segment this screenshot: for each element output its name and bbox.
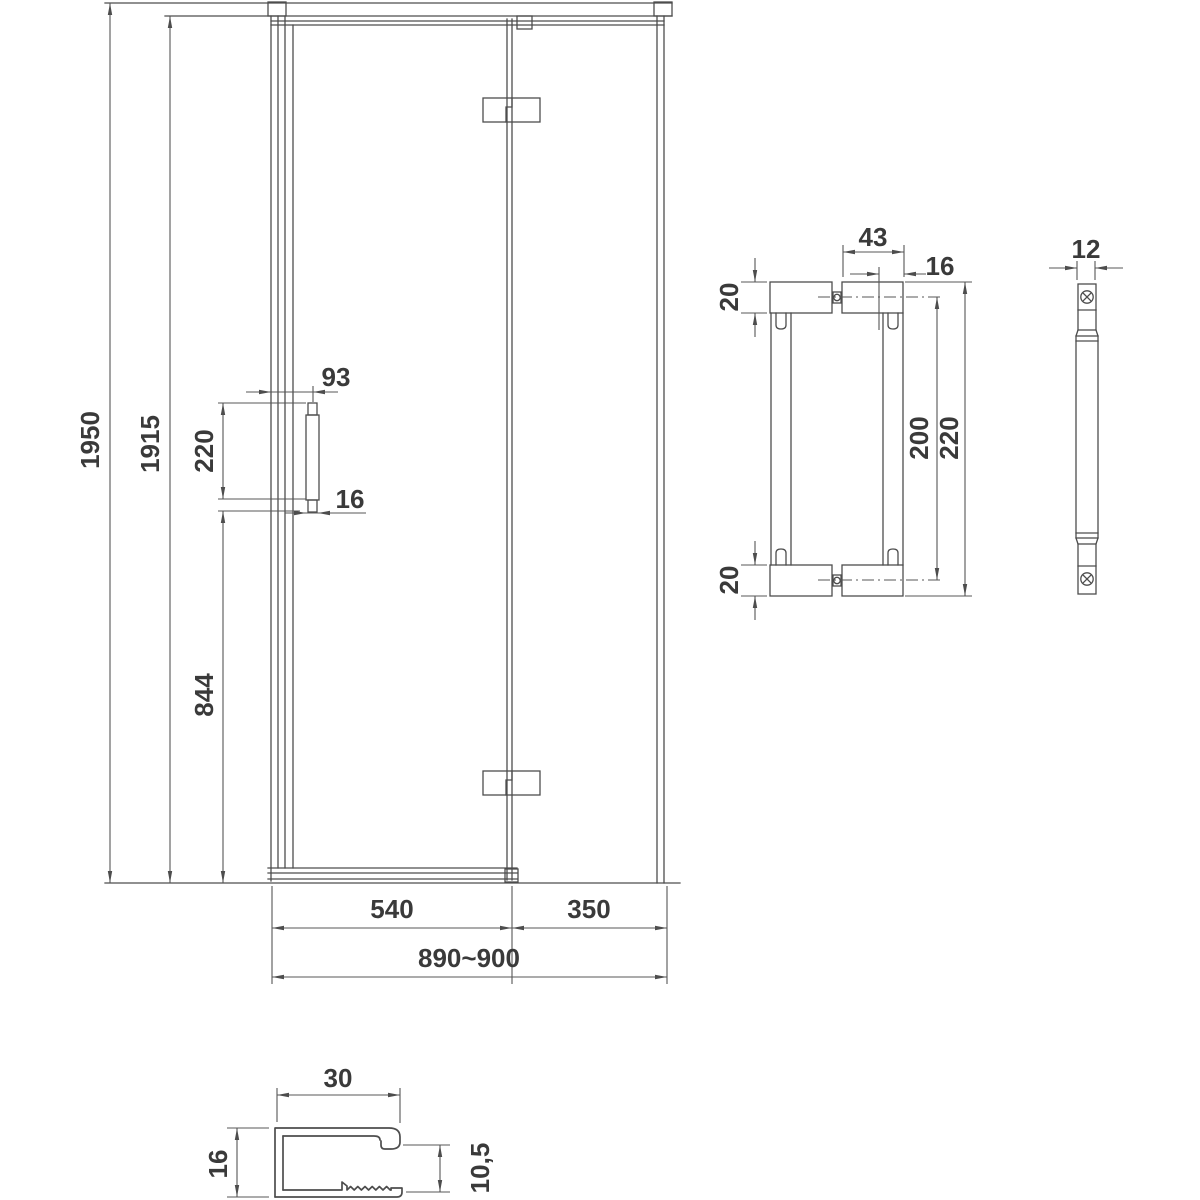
dim-overall-width: 890~900 (418, 943, 520, 973)
profile-inner-top (283, 1136, 380, 1140)
drawing-canvas: 1950 1915 220 844 93 16 540 350 890~900 (0, 0, 1200, 1200)
dim-handle-overall-length: 220 (934, 416, 964, 459)
screw-top (1081, 291, 1093, 303)
profile-dimension-lines (227, 1088, 450, 1197)
dim-profile-inner-height: 10,5 (465, 1143, 495, 1194)
dim-mount-height-top: 20 (714, 283, 744, 312)
dim-glass-height: 1915 (135, 415, 165, 473)
dim-panel-width: 350 (567, 894, 610, 924)
bottom-rail (268, 868, 518, 882)
profile-outer-contour (275, 1128, 400, 1197)
technical-drawing: 1950 1915 220 844 93 16 540 350 890~900 (0, 0, 1200, 1200)
top-rail-left-cap (268, 2, 286, 16)
dim-profile-width: 30 (324, 1063, 353, 1093)
dim-total-height: 1950 (75, 411, 105, 469)
dim-handle-length: 220 (189, 429, 219, 472)
handle-front-view (770, 282, 903, 596)
dim-mount-width: 43 (859, 222, 888, 252)
dim-door-width: 540 (370, 894, 413, 924)
dim-handle-offset: 93 (322, 362, 351, 392)
handle-side-view (1076, 284, 1098, 594)
top-rail-right-cap (654, 2, 672, 16)
top-pivot-bracket (517, 16, 532, 29)
dim-profile-height: 16 (203, 1150, 233, 1179)
dim-bar-thickness: 12 (1072, 234, 1101, 264)
dim-handle-to-floor: 844 (189, 673, 219, 717)
bottom-profile-section (275, 1128, 402, 1197)
screw-bottom (1081, 573, 1093, 585)
profile-serration (283, 1182, 391, 1190)
dim-bar-offset: 16 (926, 251, 955, 281)
dim-mount-height-bottom: 20 (714, 566, 744, 595)
door-handle (306, 403, 319, 512)
door-dimension-lines (110, 3, 667, 984)
dim-handle-width: 16 (336, 484, 365, 514)
dim-hole-spacing: 200 (904, 416, 934, 459)
